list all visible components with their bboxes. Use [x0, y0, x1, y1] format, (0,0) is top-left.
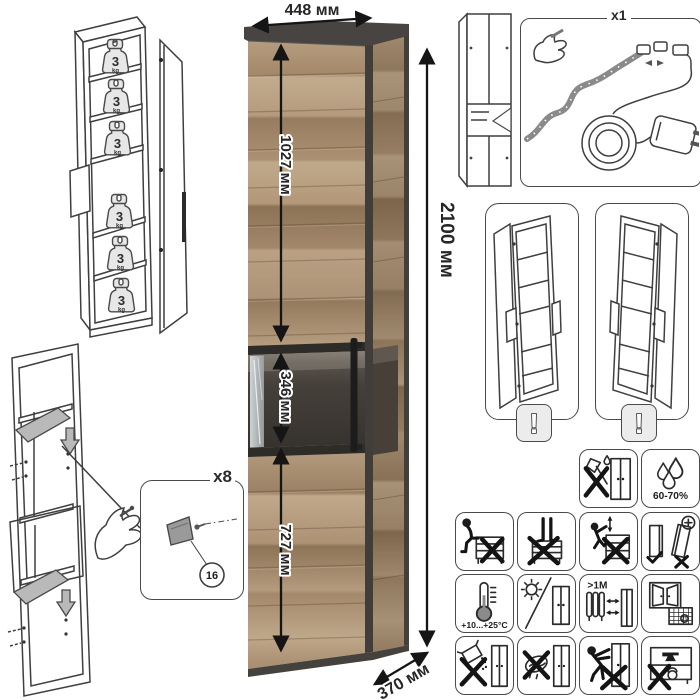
- door-adjustment-icon: [641, 512, 700, 571]
- upper-section-dimension-label: 1027 мм: [277, 135, 294, 195]
- shelf-load-weight-icon: 3 kg: [105, 235, 135, 271]
- glass-section-dimension-label: 346 мм: [277, 371, 294, 422]
- no-sitting-icon: [455, 512, 514, 571]
- no-wet-cleaning-icon: [517, 636, 576, 695]
- led-kit-quantity-label: x1: [607, 8, 631, 22]
- shelf-load-value: 3: [116, 209, 123, 224]
- furniture-spec-sheet: 3 kg 3 kg 3 kg 3 kg: [0, 0, 700, 700]
- door-left-option-box: [485, 203, 579, 420]
- shelf-load-weight-icon: 3 kg: [104, 193, 134, 229]
- cabinet-image: [244, 21, 409, 677]
- shelf-load-unit: kg: [114, 151, 121, 157]
- width-dimension-label: 448 мм: [285, 2, 340, 19]
- height-dimension-label: 2100 мм: [436, 202, 457, 278]
- shelf-load-value: 3: [113, 94, 120, 109]
- shelf-load-weight-icon: 3 kg: [102, 120, 132, 156]
- no-scratching-icon: [579, 449, 638, 508]
- no-sunlight-icon: [517, 574, 576, 633]
- shelf-load-unit: kg: [112, 69, 119, 75]
- warning-badge: !: [516, 404, 552, 442]
- shelf-load-unit: kg: [116, 224, 123, 230]
- part-number-label: 16: [206, 570, 218, 582]
- shelf-load-value: 3: [112, 54, 119, 69]
- shelf-load-value: 3: [114, 136, 121, 151]
- shelf-load-value: 3: [117, 251, 124, 266]
- led-kit-drawing: [521, 19, 699, 183]
- ventilation-icon: 21: [641, 574, 700, 633]
- product-photo: 448 мм 1027 мм 346 мм 727 мм 2100 мм 370…: [230, 0, 465, 700]
- temperature-range-icon: +10...+25°C: [455, 574, 514, 633]
- no-climbing-icon: [579, 512, 638, 571]
- shelf-load-weight-icon: 3 kg: [101, 78, 131, 114]
- shelf-load-value: 3: [118, 293, 125, 308]
- exclamation-mark: !: [529, 408, 538, 439]
- warning-badge: !: [621, 404, 657, 442]
- led-cabinet-drawing: [455, 8, 517, 192]
- no-standing-icon: [517, 512, 576, 571]
- no-dragging-icon: [579, 636, 638, 695]
- shelf-load-weight-icon: 3 kg: [100, 38, 130, 74]
- temperature-value: +10...+25°C: [461, 620, 508, 630]
- fastener-detail-box: x8 16: [140, 480, 244, 600]
- no-heavy-items-icon: [641, 636, 700, 695]
- door-right-cabinet-drawing: [596, 204, 685, 416]
- calendar-day-value: 21: [682, 617, 688, 623]
- door-left-cabinet-drawing: [486, 204, 575, 416]
- shelf-load-weight-icon: 3 kg: [106, 277, 136, 313]
- shelf-load-unit: kg: [118, 308, 125, 314]
- door-right-option-box: [595, 203, 689, 420]
- humidity-icon: 60-70%: [641, 449, 700, 508]
- led-kit-box: x1: [520, 18, 700, 187]
- shelf-load-unit: kg: [113, 109, 120, 115]
- no-abrasives-icon: [455, 636, 514, 695]
- shelf-load-unit: kg: [117, 266, 124, 272]
- lower-section-dimension-label: 727 мм: [277, 524, 294, 575]
- exclamation-mark: !: [634, 408, 643, 439]
- heat-distance-icon: >1M: [579, 574, 638, 633]
- fastener-detail-drawing: 16: [141, 481, 241, 596]
- humidity-value: 60-70%: [653, 491, 688, 502]
- heat-distance-value: >1M: [587, 581, 607, 592]
